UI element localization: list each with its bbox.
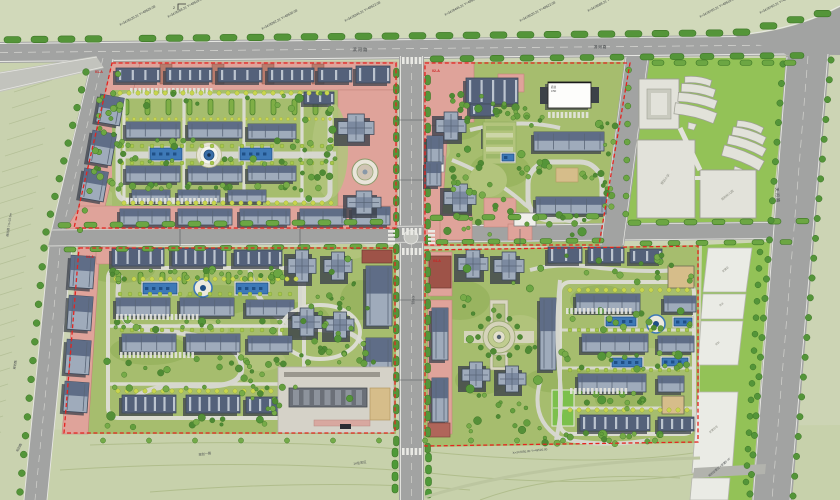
svg-text:03-A: 03-A — [86, 255, 94, 259]
svg-text:02-A: 02-A — [432, 69, 440, 73]
svg-text:2: 2 — [173, 6, 175, 10]
svg-text:3.5F: 3.5F — [551, 89, 557, 93]
svg-text:商业: 商业 — [551, 85, 557, 89]
svg-text:01-A: 01-A — [95, 70, 103, 74]
svg-text:滨 河 路: 滨 河 路 — [353, 46, 369, 53]
svg-text:04-A: 04-A — [433, 259, 441, 263]
svg-text:滨 河 路: 滨 河 路 — [594, 44, 607, 49]
